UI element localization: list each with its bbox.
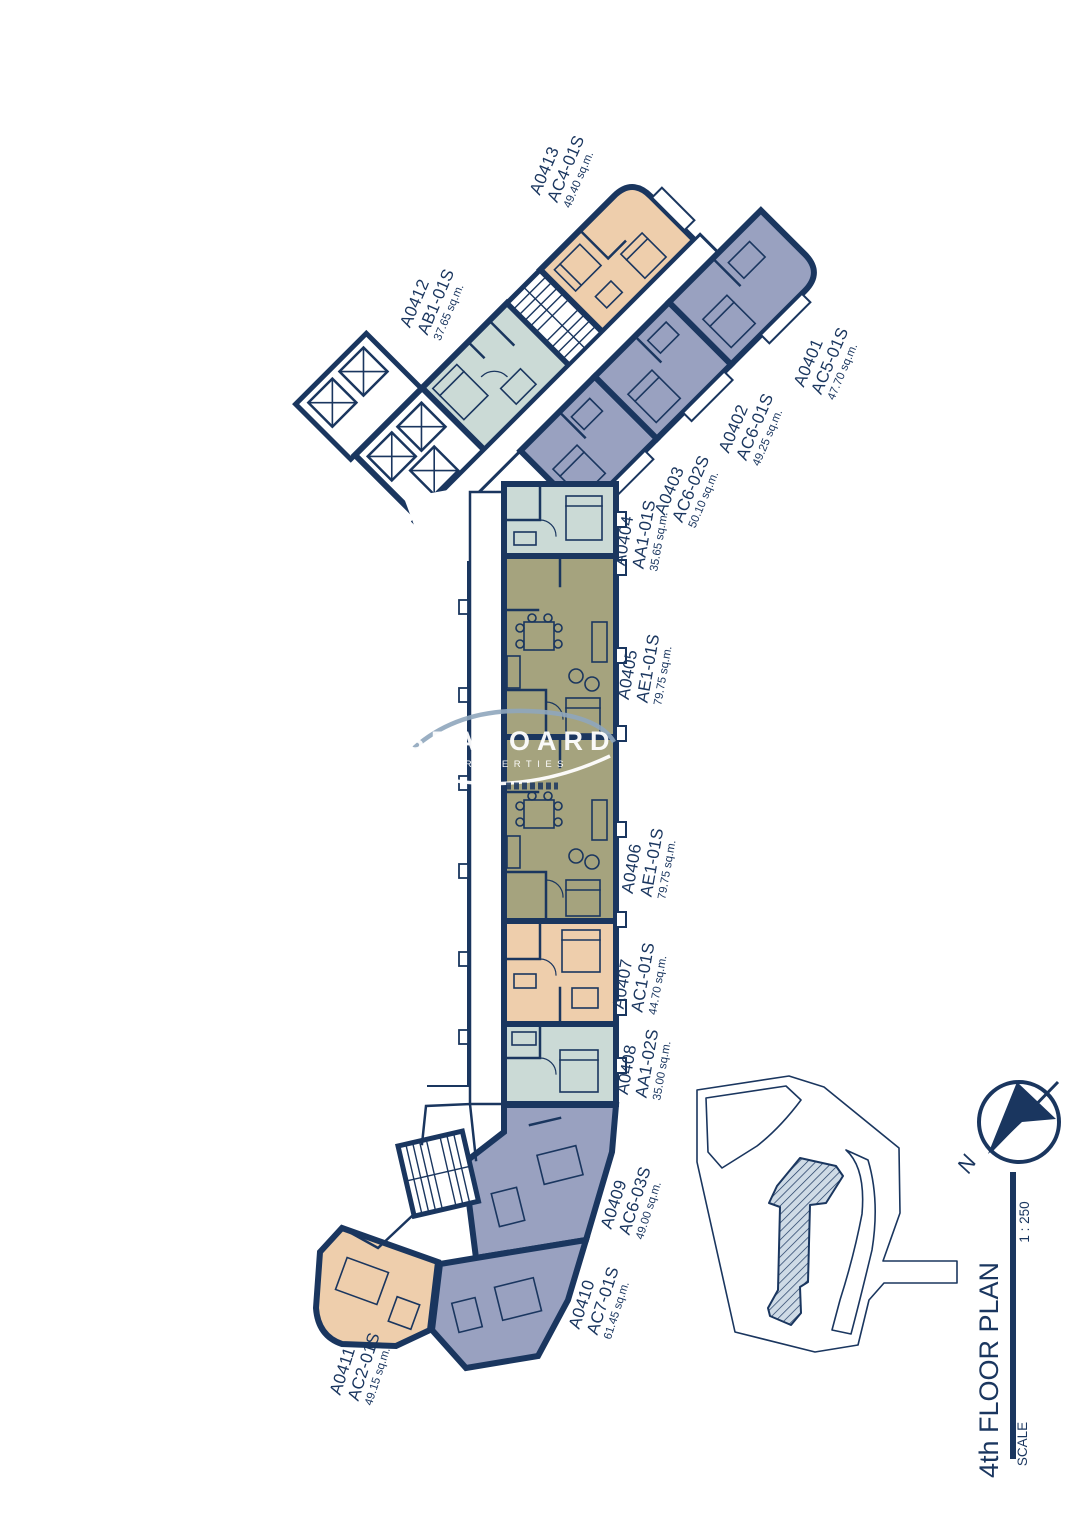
scale-label: SCALE xyxy=(1015,1422,1030,1466)
north-label: N xyxy=(952,1151,982,1178)
corridor-mid xyxy=(470,492,504,1104)
title-rule xyxy=(1010,1172,1016,1459)
north-arrow: N xyxy=(952,1082,1059,1177)
unit-A0409 xyxy=(464,1105,616,1258)
stair-core-lower xyxy=(398,1131,479,1216)
unit-A0410 xyxy=(432,1240,586,1368)
corridor-junction-top xyxy=(404,486,470,566)
unit-A0411 xyxy=(316,1228,438,1346)
west-parapet xyxy=(428,562,468,1086)
site-key-plan xyxy=(697,1076,957,1352)
ac-ledge-marks-west xyxy=(459,600,468,1044)
mid-strip xyxy=(428,484,626,1104)
floor-plan-svg: N 1 : 250 4th FLOOR PLAN SCALE xyxy=(0,0,1080,1527)
floor-plan-page: N 1 : 250 4th FLOOR PLAN SCALE SEABOARD … xyxy=(0,0,1080,1527)
scale-value: 1 : 250 xyxy=(1017,1201,1032,1242)
title-block: 1 : 250 4th FLOOR PLAN SCALE xyxy=(974,1172,1032,1478)
page-title: 4th FLOOR PLAN xyxy=(974,1262,1004,1478)
